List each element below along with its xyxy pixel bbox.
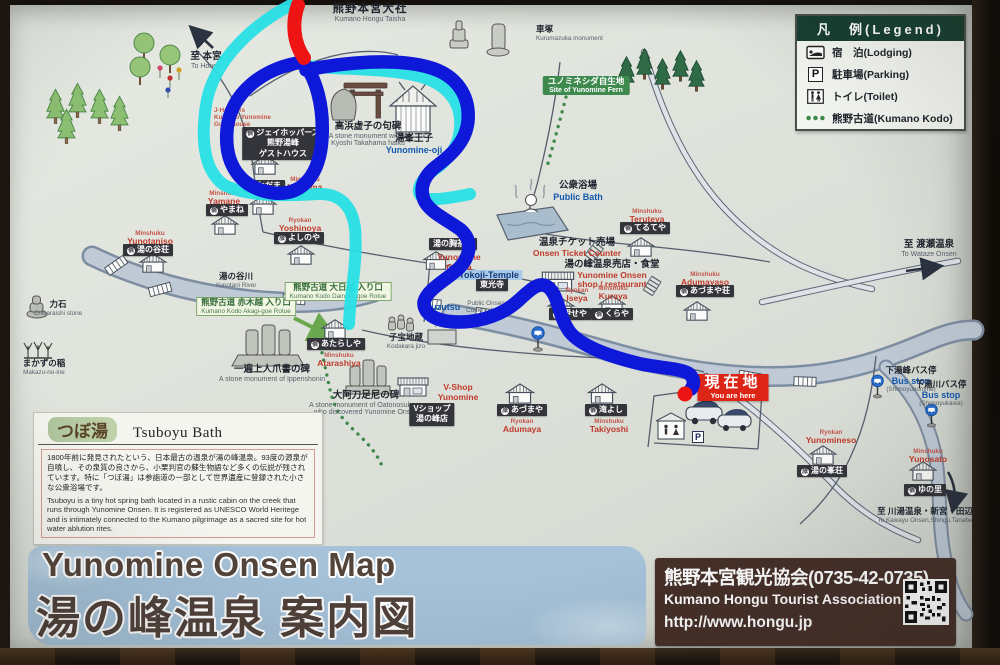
tsuboyu-text-ja: 1800年前に発見されたという、日本最古の温泉が湯の峰温泉。93度の源泉が自噴し… <box>47 453 309 493</box>
tsuboyu-title-en: Tsuboyu Bath <box>133 425 223 442</box>
label-jhoppers-name: J-HoppersKumano YunomineGuesthouse <box>214 107 271 128</box>
parking-icon: P <box>806 67 825 82</box>
legend-item-label: 宿 泊(Lodging) <box>832 45 912 60</box>
label-atarashiya-name: MinshukuAtarashiya <box>317 352 360 369</box>
legend-item-label: トイレ(Toilet) <box>832 89 898 104</box>
label-parking-sign: P <box>692 427 704 445</box>
tsuboyu-title-ja: つぼ湯 <box>48 417 117 442</box>
label-yuzutsu-ja: 湯筒 <box>461 317 478 327</box>
label-busstop-shimoyukawa: 下湯川バス停Bus stop(Shimoyukawa) <box>915 380 966 407</box>
label-yunomineso-name: RyokanYunomineso <box>806 429 857 446</box>
map-title-en: Yunomine Onsen Map <box>42 546 396 584</box>
map-title-ja: 湯の峰温泉 案内図 <box>36 582 418 646</box>
tsuboyu-title: つぼ湯 Tsuboyu Bath <box>38 413 318 445</box>
tourist-association-url: http://www.hongu.jp <box>664 614 812 632</box>
label-iseya-name: RyokanIseya <box>566 287 589 304</box>
legend-item-label: 駐車場(Parking) <box>832 67 909 82</box>
label-atarashiya-box: 宿あたらしや <box>307 338 365 350</box>
legend-title: 凡 例(Legend) <box>797 16 964 41</box>
label-to-wataze: 至 渡瀬温泉To Wataze Onsen <box>901 240 956 258</box>
label-public-bath: 公衆浴場Public Bath <box>553 181 603 202</box>
qr-code <box>903 579 949 625</box>
label-wadama-box: 宿わだま <box>243 180 285 192</box>
kumano-kodo-dots-icon <box>806 111 825 126</box>
label-yuzutsu: Yuzutsu <box>426 302 461 312</box>
legend-item-lodging: 宿 泊(Lodging) <box>797 41 964 63</box>
label-yunomine-oji: 湯峯王子Yunomine-oji <box>386 134 443 155</box>
toilet-icon <box>806 89 825 104</box>
title-banner: Yunomine Onsen Map 湯の峰温泉 案内図 <box>28 546 646 645</box>
legend-box: 凡 例(Legend) 宿 泊(Lodging) P 駐車場(Parking) … <box>795 14 966 131</box>
label-kuraya-box: 宿くらや <box>591 308 633 320</box>
label-wadama-name: MinshukuWadama <box>288 176 323 193</box>
tsuboyu-text-en: Tsuboyu is a tiny hot spring bath locate… <box>47 496 309 534</box>
label-kumano-hongu-taisha: 熊野本宮大社Kumano Hongu Taisha <box>333 3 408 24</box>
legend-item-kumano-kodo: 熊野古道(Kumano Kodo) <box>797 107 964 129</box>
label-teruteya-box: 宿てるてや <box>620 222 670 234</box>
label-vshop-box: Vショップ湯の峰店 <box>409 403 454 426</box>
label-adumaya-name: RyokanAdumaya <box>503 418 541 435</box>
label-takiyoshi-box: 宿滝よし <box>585 404 627 416</box>
label-adumayaso-box: 宿あづまや荘 <box>676 285 734 297</box>
label-you-are-here: 現在地You are here <box>697 374 768 401</box>
tourist-association-box: 熊野本宮観光協会(0735-42-0735) Kumano Hongu Tour… <box>655 558 956 646</box>
label-kurumazuka: 車塚Kurumazuka monument <box>536 25 603 42</box>
label-yunotaniso-box: 宿湯の谷荘 <box>123 244 173 256</box>
label-takiyoshi-name: MinshukuTakiyoshi <box>590 418 629 435</box>
label-yunomune-chaya-box: 湯の胸茶屋 <box>429 238 477 250</box>
tourist-association-name-en: Kumano Hongu Tourist Association <box>664 591 901 607</box>
label-to-hongu: 至 本宮To Hongu <box>190 52 221 70</box>
tsuboyu-description: 1800年前に発見されたという、日本最古の温泉が湯の峰温泉。93度の源泉が自噴し… <box>41 449 315 538</box>
label-yunomineso-box: 旅湯の峯荘 <box>797 465 847 477</box>
label-yunotani-river: 湯の谷川Yunotani River <box>216 272 257 289</box>
label-dainichi-goe: 熊野古道 大日越 入り口Kumano Kodo Dainichi-goe Rot… <box>285 282 392 301</box>
tourist-association-name-ja: 熊野本宮観光協会(0735-42-0735) <box>664 564 929 590</box>
label-yoshinoya-box: 旅よしのや <box>274 232 324 244</box>
label-kuraya-name: MinshukuKuraya <box>598 285 627 302</box>
label-makazu-no-ine: まかずの稲Makazu-no-ine <box>23 359 66 376</box>
map-sign-photo: 熊野本宮大社Kumano Hongu Taisha車塚Kurumazuka mo… <box>0 0 1000 665</box>
label-iseya-box: 旅伊せや <box>549 308 591 320</box>
tsuboyu-info-box: つぼ湯 Tsuboyu Bath 1800年前に発見されたという、日本最古の温泉… <box>33 412 323 545</box>
label-onsen-ticket: 温泉チケット売場Onsen Ticket Counter <box>533 238 621 258</box>
label-yamane-box: 宿やまね <box>206 204 248 216</box>
legend-item-parking: P 駐車場(Parking) <box>797 63 964 85</box>
label-akagi-goe: 熊野古道 赤木越 入り口Kumano Kodo Akagi-goe Rotue <box>196 297 296 316</box>
label-vshop-name: V-ShopYunomine <box>438 383 479 402</box>
label-jhoppers-box: 宿ジェイホッパーズ熊野湯峰ゲストハウス <box>242 127 324 160</box>
label-yunomine-fern: ユノミネシダ自生地Site of Yunomine Fern <box>543 76 630 95</box>
label-oatonosukune: 大阿刀足尼の碑A stone monument of Oatonosukunew… <box>309 391 423 417</box>
legend-item-toilet: トイレ(Toilet) <box>797 85 964 107</box>
label-adumaya-box: 旅あづまや <box>497 404 547 416</box>
label-to-kawayu: 至 川湯温泉・新宮・田辺To Kawayu Onsen,Shingu,Tanab… <box>877 507 973 524</box>
label-ippen-monument: 一遍上人爪書の碑A stone monument of Ippenshonin <box>219 365 325 383</box>
label-yunosato-box: 宿ゆの里 <box>904 484 946 496</box>
label-tokoji-box: 東光寺 <box>476 279 508 291</box>
label-kodakara-jizo: 子宝地蔵Kodakara jizo <box>387 333 425 350</box>
lodging-icon <box>806 45 825 60</box>
label-yunosato-name: MinshukuYunosato <box>909 448 947 465</box>
label-yuzutsu-desc: Public OnsenCooking basin <box>466 300 506 314</box>
legend-item-label: 熊野古道(Kumano Kodo) <box>832 111 953 126</box>
label-chikaraishi: 力石Chikaraishi stone <box>34 300 82 317</box>
